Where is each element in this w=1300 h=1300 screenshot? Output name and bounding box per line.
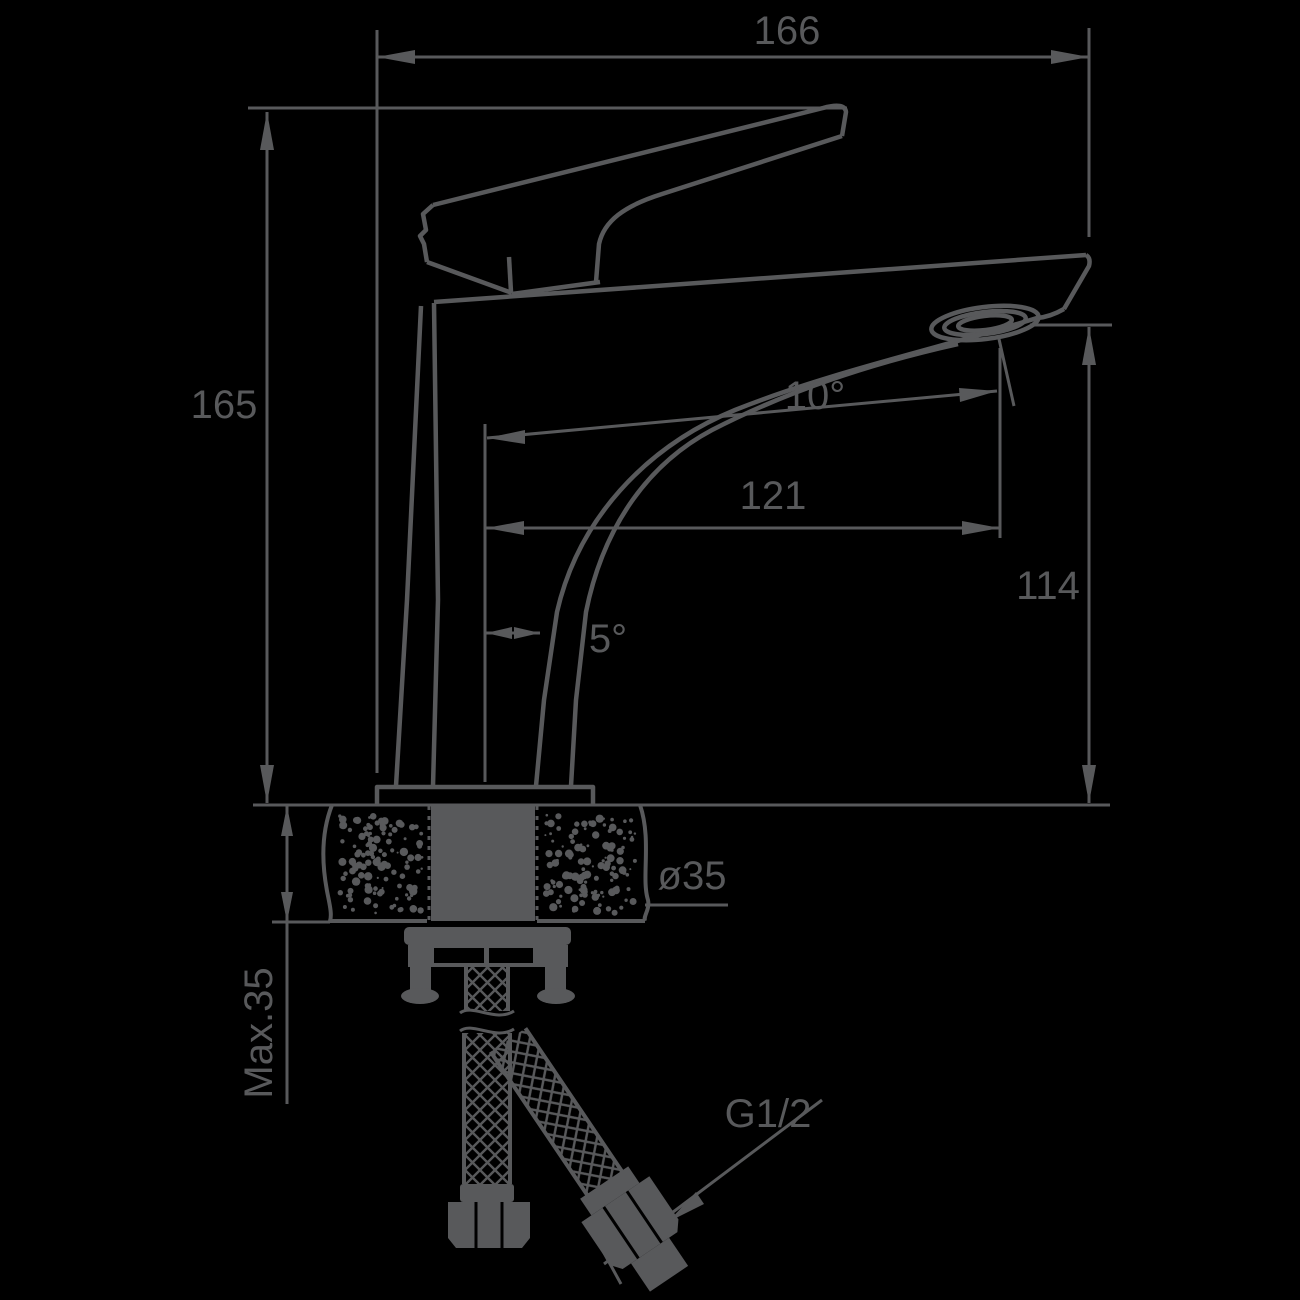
granite-speckle [629, 818, 633, 822]
granite-speckle [616, 829, 623, 836]
granite-speckle [584, 827, 587, 830]
granite-speckle [419, 832, 423, 836]
granite-speckle [630, 837, 635, 842]
granite-speckle [630, 898, 637, 905]
granite-speckle [407, 854, 414, 861]
granite-speckle [549, 832, 552, 835]
cap-slope-edge [427, 262, 512, 293]
granite-speckle [373, 891, 377, 895]
granite-speckle [397, 884, 402, 889]
granite-speckle [364, 897, 372, 905]
granite-speckle [348, 828, 352, 832]
granite-speckle [392, 827, 398, 833]
granite-speckle [349, 868, 356, 875]
granite-speckle [605, 857, 607, 859]
granite-speckle [363, 826, 368, 831]
bracket-window-right [489, 948, 533, 963]
granite-speckle [381, 817, 389, 825]
granite-speckle [391, 870, 396, 875]
countertop-section [323, 805, 648, 921]
granite-speckle [377, 877, 379, 879]
granite-speckle [386, 839, 392, 845]
arrowhead-165-top [260, 112, 274, 150]
granite-speckle [353, 845, 357, 849]
granite-speckle [546, 814, 549, 817]
granite-speckle-texture-right [543, 813, 637, 916]
granite-speckle [400, 848, 408, 856]
arrowhead-max35-bottom [281, 892, 293, 922]
granite-speckle [604, 860, 610, 866]
granite-speckle [603, 823, 606, 826]
label-outlet-height: 114 [1016, 564, 1080, 608]
hose-break-line-2 [460, 1028, 514, 1033]
base-plate [377, 787, 593, 805]
granite-speckle [571, 873, 579, 881]
granite-speckle [369, 851, 374, 856]
granite-speckle [404, 837, 407, 840]
label-max-deck-thickness: Max.35 [237, 967, 281, 1098]
granite-speckle [412, 885, 418, 891]
granite-speckle [398, 821, 404, 827]
granite-speckle [365, 883, 370, 888]
granite-speckle [626, 873, 630, 877]
granite-speckle [556, 826, 561, 831]
arrowhead-165-bottom [260, 765, 274, 803]
granite-speckle [559, 905, 562, 908]
spout-underside-inner [571, 344, 958, 786]
granite-speckle [367, 835, 370, 838]
granite-speckle [607, 855, 612, 860]
granite-speckle [415, 854, 422, 861]
granite-speckle [579, 846, 586, 853]
stud-foot-left [401, 988, 439, 1004]
stud-foot-right [537, 988, 575, 1004]
granite-speckle [390, 848, 394, 852]
faucet-shank-section [431, 806, 535, 921]
granite-speckle [611, 844, 615, 848]
arrowhead-121-left [486, 521, 524, 535]
granite-speckle [615, 886, 620, 891]
arrowhead-121-right [962, 521, 1000, 535]
granite-speckle [389, 824, 393, 828]
granite-speckle [623, 819, 627, 823]
countertop-left-broken-edge [323, 805, 332, 921]
label-spout-angle: 10° [785, 374, 846, 418]
granite-speckle [592, 893, 599, 900]
faucet-dimension-drawing: 166 165 10° 121 114 5° ø35 Max.35 G1/2 [0, 0, 1300, 1300]
granite-speckle [556, 899, 561, 904]
granite-speckle [395, 897, 399, 901]
granite-speckle [584, 881, 587, 884]
granite-speckle [611, 866, 616, 871]
granite-speckle [343, 871, 348, 876]
granite-speckle [373, 858, 381, 866]
granite-speckle [381, 861, 389, 869]
granite-speckle [400, 873, 406, 879]
granite-speckle [621, 846, 625, 850]
granite-speckle [623, 837, 626, 840]
arrowhead-5deg-right [514, 627, 540, 639]
handle-underside-drop [509, 257, 511, 292]
granite-speckle [634, 832, 636, 834]
spout-tip-bottom [1037, 309, 1064, 318]
granite-speckle [410, 894, 413, 897]
granite-speckle [410, 905, 418, 913]
column-left-inner-edge [433, 303, 438, 786]
granite-speckle [619, 906, 623, 910]
granite-speckle [579, 900, 585, 906]
granite-speckle [353, 817, 359, 823]
granite-speckle [369, 844, 377, 852]
granite-speckle [600, 891, 603, 894]
label-hole-diameter: ø35 [658, 854, 727, 898]
granite-speckle [581, 821, 588, 828]
label-body-tilt: 5° [589, 617, 627, 661]
granite-speckle [570, 839, 575, 844]
granite-speckle [602, 896, 604, 898]
granite-speckle [627, 887, 631, 891]
granite-speckle [405, 893, 408, 896]
granite-speckle [351, 908, 355, 912]
granite-speckle [619, 866, 627, 874]
granite-speckle [370, 813, 377, 820]
granite-speckle [608, 829, 612, 833]
granite-speckle [416, 840, 423, 847]
granite-speckle [567, 872, 569, 874]
granite-speckle [384, 877, 389, 882]
granite-speckle [593, 907, 601, 915]
granite-speckle [348, 888, 354, 894]
granite-speckle [547, 862, 553, 868]
granite-speckle [596, 815, 604, 823]
label-spout-reach: 121 [740, 474, 807, 518]
granite-speckle [377, 891, 383, 897]
granite-speckle [378, 849, 382, 853]
arrowhead-114-top [1082, 327, 1096, 365]
granite-speckle [574, 821, 579, 826]
granite-speckle [341, 876, 346, 881]
granite-speckle [588, 821, 592, 825]
granite-speckle [564, 886, 572, 894]
granite-speckle [340, 839, 344, 843]
straight-hose-braid-lower [464, 1033, 510, 1184]
granite-speckle [339, 821, 347, 829]
granite-speckle [598, 903, 602, 907]
granite-speckle [562, 845, 564, 847]
granite-speckle [580, 886, 588, 894]
granite-speckle [610, 879, 613, 882]
granite-speckle [548, 889, 554, 895]
label-overall-height: 165 [191, 383, 258, 427]
granite-speckle [581, 872, 588, 879]
granite-speckle [343, 905, 347, 909]
granite-speckle [399, 907, 404, 912]
granite-speckle [583, 857, 591, 865]
technical-drawing-canvas: 166 165 10° 121 114 5° ø35 Max.35 G1/2 [0, 0, 1300, 1300]
granite-speckle [572, 828, 579, 835]
granite-speckle [556, 881, 563, 888]
bracket-window-left [434, 948, 484, 963]
granite-speckle [553, 885, 556, 888]
granite-speckle [409, 824, 415, 830]
granite-speckle [562, 871, 570, 879]
granite-speckle [594, 876, 599, 881]
granite-speckle [592, 831, 599, 838]
granite-speckle [367, 824, 373, 830]
granite-speckle [610, 871, 615, 876]
straight-hose-nut [448, 1202, 530, 1248]
dimension-labels: 166 165 10° 121 114 5° ø35 Max.35 G1/2 [191, 9, 1080, 1136]
granite-speckle [417, 907, 423, 913]
granite-speckle [416, 869, 421, 874]
granite-speckle [389, 905, 394, 910]
granite-speckle [544, 834, 546, 836]
granite-speckle [616, 857, 623, 864]
granite-speckle [364, 872, 372, 880]
granite-speckle [612, 910, 618, 916]
straight-hose-collar [460, 1184, 514, 1202]
body-top-rim [434, 255, 1086, 302]
arrowhead-5deg-left [486, 627, 512, 639]
granite-speckle [374, 912, 377, 915]
granite-speckle [382, 852, 387, 857]
granite-speckle [629, 868, 631, 870]
mounting-bracket [408, 945, 568, 967]
column-left-outer-edge [396, 306, 421, 786]
granite-speckle [581, 867, 585, 871]
granite-speckle [544, 883, 551, 890]
granite-speckle [382, 887, 384, 889]
granite-speckle [559, 895, 562, 898]
supply-hoses [448, 966, 703, 1300]
label-thread-size: G1/2 [725, 1092, 812, 1136]
granite-speckle [624, 899, 627, 902]
granite-speckle [591, 891, 594, 894]
granite-speckle [373, 903, 378, 908]
granite-speckle [580, 843, 583, 846]
dimension-lines [248, 28, 1112, 1284]
granite-speckle [545, 850, 552, 857]
spout-right-edge [1064, 255, 1090, 309]
granite-speckle [365, 860, 371, 866]
handle-bottom-edge [596, 136, 842, 282]
granite-speckle [549, 903, 557, 911]
countertop-right-broken-edge [640, 805, 648, 921]
handle-front-edge [420, 205, 433, 262]
granite-speckle [555, 813, 561, 819]
granite-speckle [570, 894, 578, 902]
granite-speckle [569, 834, 574, 839]
granite-speckle [606, 906, 611, 911]
granite-speckle [348, 897, 353, 902]
granite-speckle [373, 836, 381, 844]
granite-speckle [610, 818, 614, 822]
granite-speckle [572, 906, 579, 913]
granite-speckle [397, 852, 399, 854]
granite-speckle [407, 896, 411, 900]
arrowhead-114-bottom [1082, 765, 1096, 803]
arrowhead-10deg-left [487, 430, 525, 444]
granite-speckle [352, 877, 360, 885]
granite-speckle [354, 851, 360, 857]
granite-speckle [373, 886, 378, 891]
mounting-washer [404, 927, 571, 945]
granite-speckle [358, 833, 365, 840]
granite-speckle-texture-left [338, 813, 424, 914]
granite-speckle [405, 861, 408, 864]
granite-speckle [338, 858, 346, 866]
straight-hose-braid-upper [466, 966, 508, 1011]
granite-speckle [602, 842, 610, 850]
granite-speckle [358, 872, 365, 879]
granite-speckle [421, 868, 423, 870]
granite-speckle [544, 821, 548, 825]
granite-speckle [587, 844, 590, 847]
granite-speckle [381, 831, 385, 835]
granite-speckle [388, 832, 392, 836]
granite-speckle [380, 824, 387, 831]
granite-speckle [349, 858, 356, 865]
label-overall-width: 166 [754, 9, 821, 53]
granite-speckle [551, 840, 554, 843]
granite-speckle [579, 893, 583, 897]
granite-speckle [555, 850, 562, 857]
granite-speckle [592, 865, 594, 867]
granite-speckle [568, 852, 574, 858]
granite-speckle [633, 859, 637, 863]
granite-speckle [338, 890, 343, 895]
granite-speckle [603, 818, 605, 820]
granite-speckle [628, 830, 632, 834]
granite-speckle [550, 879, 553, 882]
arrowhead-166-right [1051, 50, 1089, 64]
granite-speckle [368, 816, 371, 819]
granite-speckle [602, 859, 605, 862]
arrowhead-166-left [377, 50, 415, 64]
granite-speckle [404, 864, 410, 870]
arrowhead-max35-top [281, 806, 293, 836]
